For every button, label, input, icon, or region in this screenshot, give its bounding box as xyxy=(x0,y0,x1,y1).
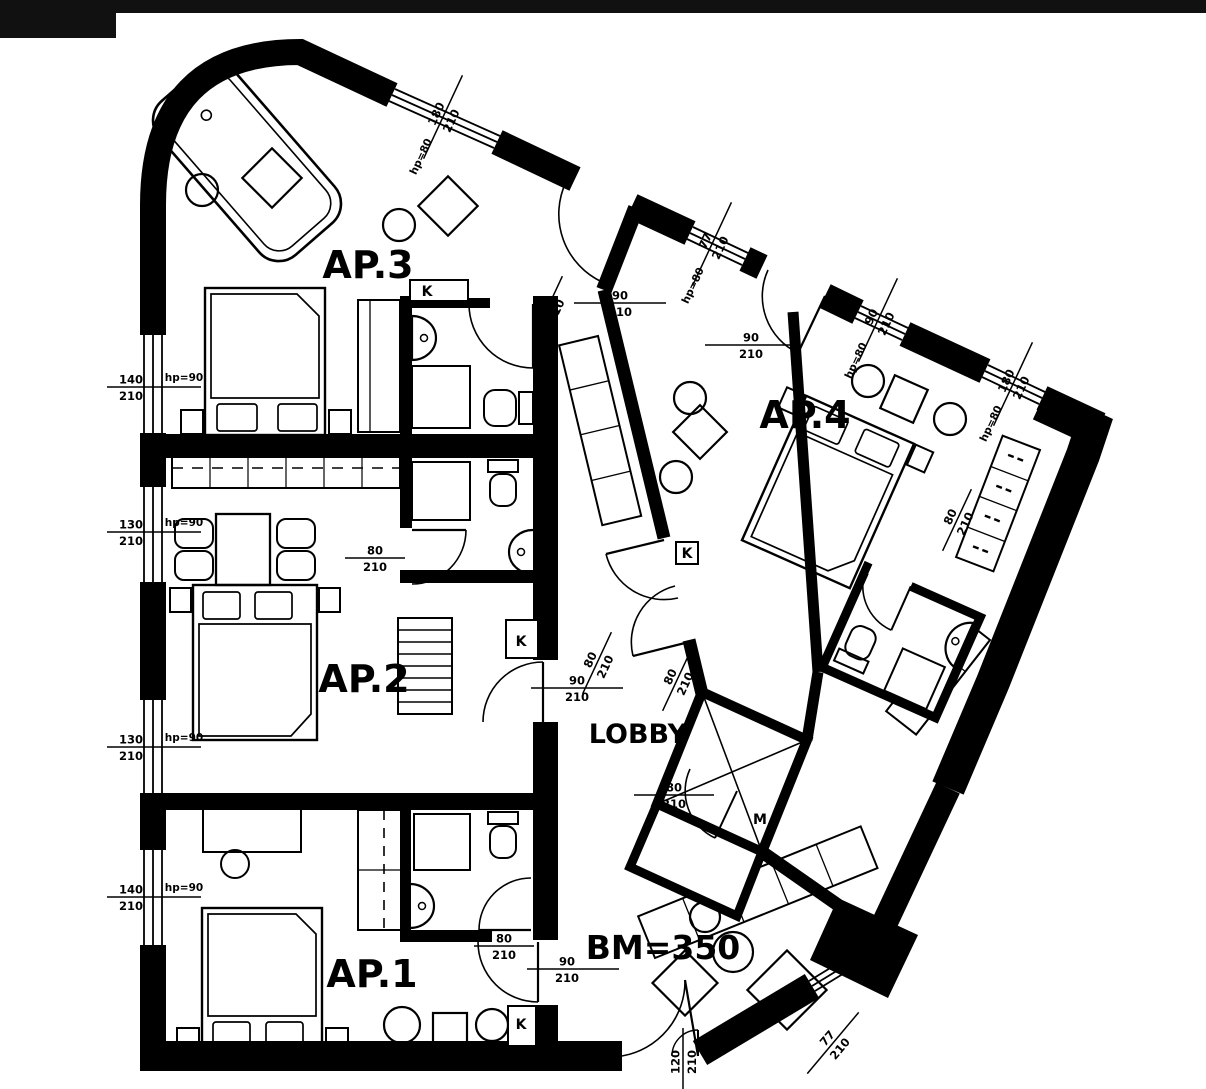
ap3-bed xyxy=(181,288,351,435)
parapet-height-text: hp=80 xyxy=(978,404,1005,444)
ap1-bathroom-fixtures xyxy=(410,812,518,928)
marker-k-ap1: K xyxy=(516,1017,528,1033)
ap3-bathtub xyxy=(142,52,351,272)
ap3-lounge-tables xyxy=(186,148,478,241)
dimension-height: 210 xyxy=(739,347,763,361)
dimension-height: 210 xyxy=(363,560,387,574)
marker-m-room: M xyxy=(753,812,767,828)
dimension-width: 80 xyxy=(367,544,383,558)
parapet-label-hp-left-3: hp=90 xyxy=(165,732,203,744)
dimension-width: 130 xyxy=(119,518,143,532)
ap1-desk xyxy=(203,806,301,878)
door-corridor-1 xyxy=(606,540,678,600)
parapet-height-text: hp=90 xyxy=(165,517,203,529)
dimension-width: 90 xyxy=(612,289,628,303)
marker-k-ap2: K xyxy=(516,634,528,650)
dimension-door-ap4-bath: 80210 xyxy=(929,483,985,558)
dimension-height: 210 xyxy=(119,389,143,403)
dimension-win-se: 77210 xyxy=(796,1003,871,1084)
parapet-label-hp-top-2: hp=80 xyxy=(680,266,707,306)
ap3-desk xyxy=(358,300,400,432)
dimension-height: 210 xyxy=(662,797,686,811)
dimension-width: 130 xyxy=(119,733,143,747)
dimension-door-ap4: 90210 xyxy=(705,331,797,362)
door-ap2-entry xyxy=(483,662,543,722)
parapet-label-hp-top-3: hp=80 xyxy=(843,341,870,381)
dimension-width: 140 xyxy=(119,883,143,897)
room-label-ap1: AP.1 xyxy=(326,952,417,996)
walls-interior xyxy=(166,208,918,1056)
parapet-label-hp-top-1: hp=80 xyxy=(408,137,435,177)
ap4-bathroom xyxy=(822,559,983,717)
ap2-bathroom-fixtures xyxy=(412,460,533,574)
room-label-ap3: AP.3 xyxy=(322,243,413,287)
walls-outer xyxy=(140,52,1100,1056)
dimension-width: 140 xyxy=(119,373,143,387)
parapet-height-text: hp=90 xyxy=(165,372,203,384)
ap4-entry-tables xyxy=(660,382,727,493)
door-ap1-bath xyxy=(479,878,531,930)
dimension-height: 210 xyxy=(555,971,579,985)
marker-k-corridor: K xyxy=(682,546,694,562)
window-left-2 xyxy=(144,487,162,582)
parapet-height-text: hp=90 xyxy=(165,882,203,894)
dimension-width: 90 xyxy=(743,331,759,345)
dimension-height: 210 xyxy=(685,1050,699,1074)
room-label-bm: BM=350 xyxy=(586,928,741,967)
dimension-door-ap2: 90210 xyxy=(531,674,623,705)
room-label-ap2: AP.2 xyxy=(318,657,409,701)
dimension-height: 210 xyxy=(119,899,143,913)
dimension-width: 80 xyxy=(496,932,512,946)
top-bar xyxy=(0,0,1206,38)
parapet-label-hp-left-2: hp=90 xyxy=(165,517,203,529)
parapet-label-hp-top-4: hp=80 xyxy=(978,404,1005,444)
parapet-height-text: hp=90 xyxy=(165,732,203,744)
dimension-width: 90 xyxy=(569,674,585,688)
dimension-height: 210 xyxy=(119,534,143,548)
dimension-door-ap2-bath: 80210 xyxy=(345,544,405,575)
parapet-height-text: hp=80 xyxy=(408,137,435,177)
dimension-height: 210 xyxy=(119,749,143,763)
dimension-width: 120 xyxy=(669,1050,683,1074)
parapet-height-text: hp=80 xyxy=(680,266,707,306)
room-label-ap4: AP.4 xyxy=(759,393,850,437)
floor-plan-page: AP.3AP.2AP.1AP.4LOBBYBM=350KKKKM14021013… xyxy=(0,0,1206,1089)
dimension-width: 90 xyxy=(559,955,575,969)
room-label-lobby: LOBBY xyxy=(589,719,688,750)
parapet-label-hp-left-1: hp=90 xyxy=(165,372,203,384)
ap3-bathroom-fixtures xyxy=(412,316,533,428)
dimension-height: 210 xyxy=(608,305,632,319)
ap2-bed xyxy=(170,585,340,740)
dimension-width: 80 xyxy=(666,781,682,795)
ap1-bed xyxy=(177,908,348,1052)
dimension-door-ap3: 90210 xyxy=(574,289,666,320)
door-corridor-2 xyxy=(631,586,689,656)
dimension-height: 210 xyxy=(565,690,589,704)
parapet-label-hp-left-4: hp=90 xyxy=(165,882,203,894)
parapet-height-text: hp=80 xyxy=(843,341,870,381)
floor-plan-drawing: AP.3AP.2AP.1AP.4LOBBYBM=350KKKKM14021013… xyxy=(0,0,1206,1089)
door-ap3-bath xyxy=(469,304,533,368)
dimension-height: 210 xyxy=(492,948,516,962)
corridor-closet-row xyxy=(559,336,641,525)
marker-k-ap3: K xyxy=(422,284,434,300)
window-left-1 xyxy=(144,335,162,433)
